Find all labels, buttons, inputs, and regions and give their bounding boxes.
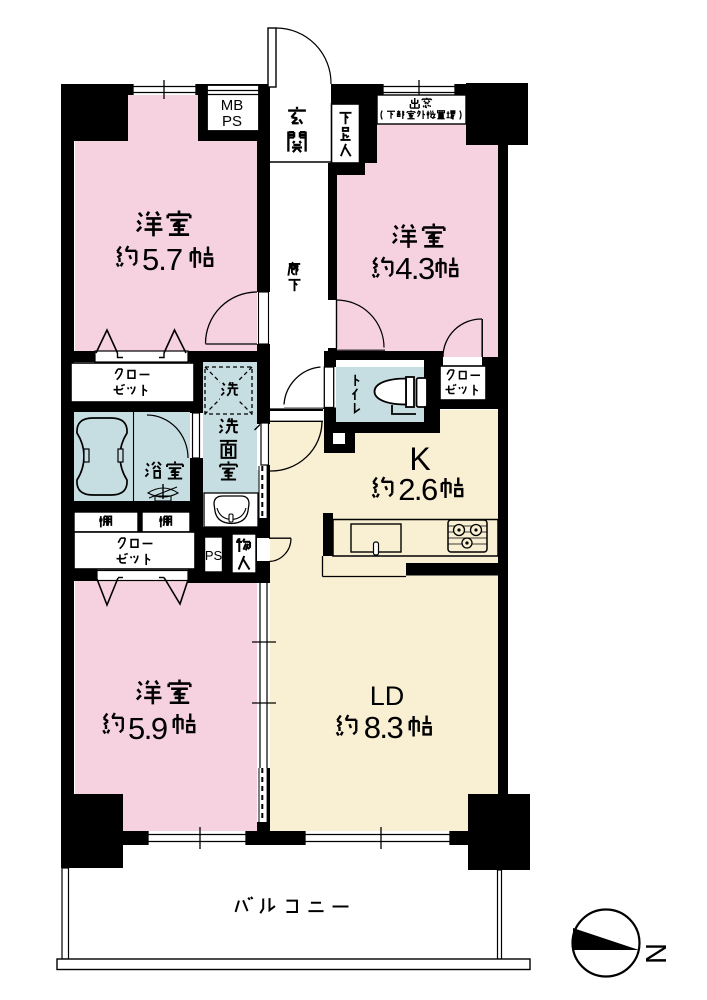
svg-text:8.3: 8.3 [364, 710, 403, 745]
svg-text:PS: PS [205, 548, 223, 563]
svg-text:5.7: 5.7 [142, 242, 182, 277]
svg-text:PS: PS [222, 113, 242, 130]
svg-text:N: N [639, 943, 671, 964]
svg-text:4.3: 4.3 [395, 251, 434, 286]
svg-text:LD: LD [370, 681, 405, 711]
svg-text:MB: MB [221, 97, 244, 114]
svg-text:5.9: 5.9 [128, 711, 167, 746]
svg-text:2.6: 2.6 [398, 472, 437, 507]
